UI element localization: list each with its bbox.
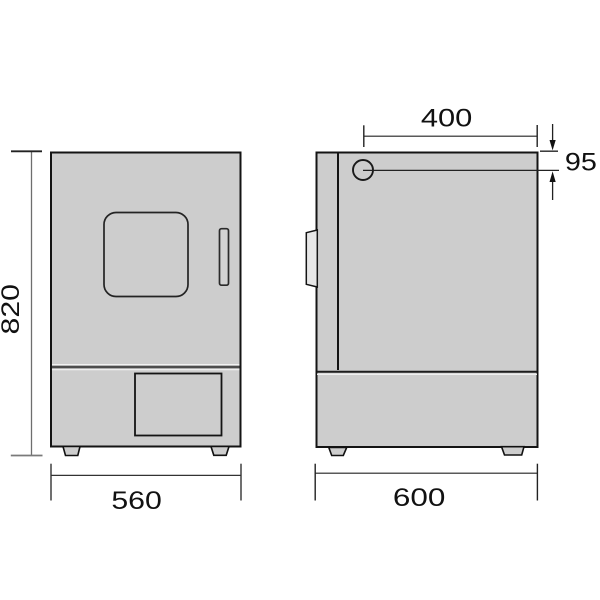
svg-text:820: 820 bbox=[0, 284, 25, 335]
svg-text:95: 95 bbox=[565, 149, 597, 177]
svg-text:560: 560 bbox=[111, 487, 162, 515]
svg-text:600: 600 bbox=[393, 484, 446, 512]
svg-text:400: 400 bbox=[421, 105, 473, 133]
